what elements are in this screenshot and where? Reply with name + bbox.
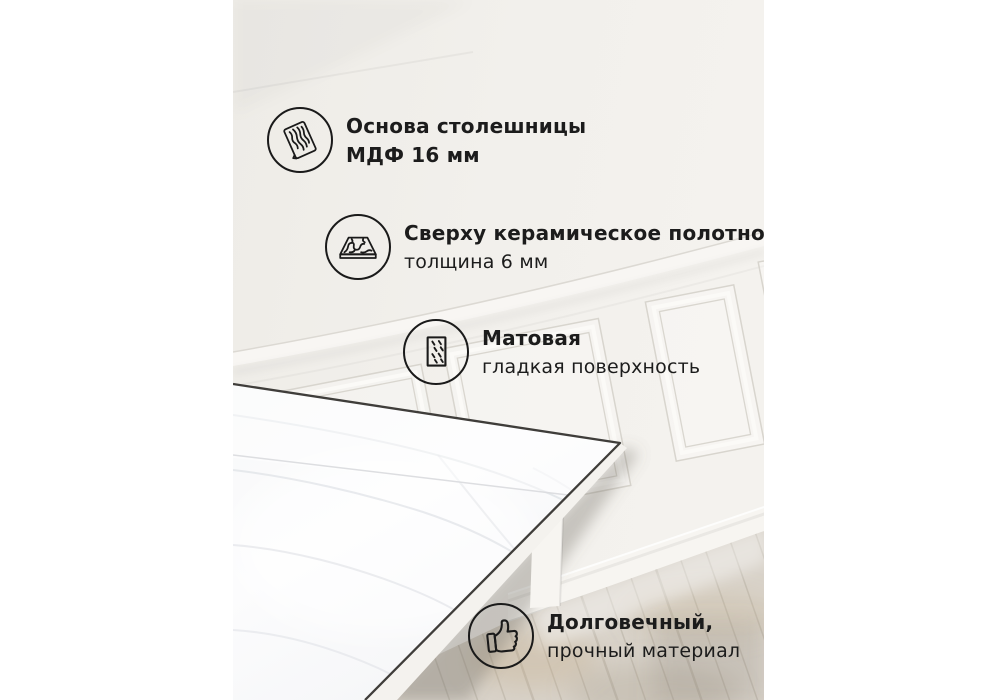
ceramic-slab-icon <box>325 214 391 280</box>
wood-grain-icon <box>267 107 333 173</box>
callout-title: Матовая <box>482 324 700 353</box>
callout-title: Сверху керамическое полотно <box>404 219 765 248</box>
callout-durable: Долговечный, прочный материал <box>468 600 740 672</box>
callout-ceramic-top: Сверху керамическое полотно толщина 6 мм <box>325 211 765 283</box>
callout-matte-surface: Матовая гладкая поверхность <box>403 316 700 388</box>
thumb-up-icon <box>468 603 534 669</box>
callout-mdf-base: Основа столешницы МДФ 16 мм <box>267 104 586 176</box>
matte-surface-icon <box>403 319 469 385</box>
callout-subtitle: толщина 6 мм <box>404 248 765 276</box>
callout-title: Долговечный, <box>547 608 740 637</box>
callout-subtitle: прочный материал <box>547 637 740 665</box>
product-infographic: Основа столешницы МДФ 16 мм Сверху керам… <box>0 0 1000 700</box>
callout-subtitle: гладкая поверхность <box>482 353 700 381</box>
callout-title: Основа столешницы <box>346 112 586 141</box>
callout-subtitle: МДФ 16 мм <box>346 141 586 169</box>
